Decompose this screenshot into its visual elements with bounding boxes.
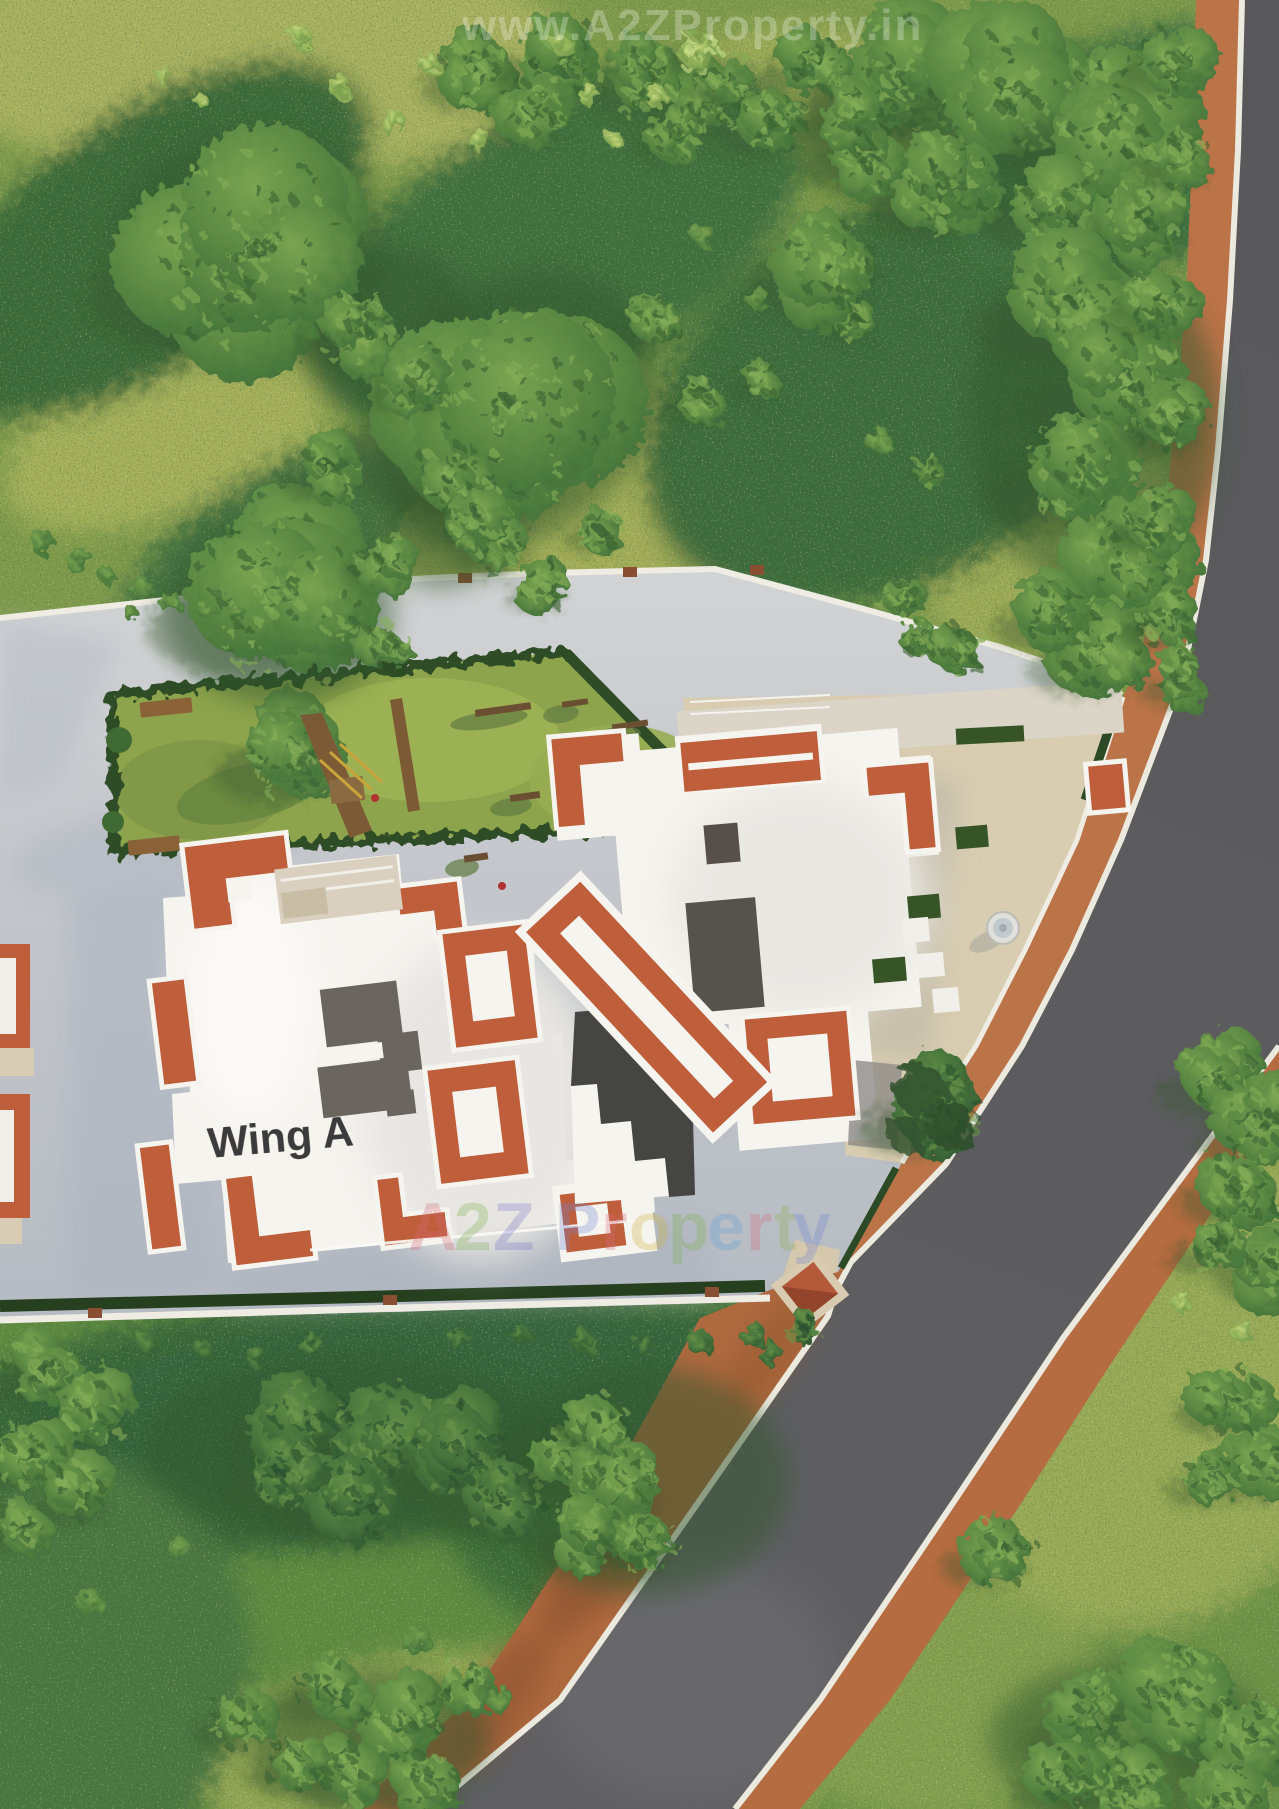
svg-text:r: r: [601, 1189, 627, 1265]
svg-text:p: p: [668, 1189, 710, 1265]
svg-text:2: 2: [454, 1189, 492, 1265]
svg-text:www.A2ZProperty.in: www.A2ZProperty.in: [461, 1, 923, 50]
svg-text:P: P: [555, 1189, 600, 1265]
svg-text:y: y: [793, 1189, 831, 1265]
svg-text:Z: Z: [493, 1189, 535, 1265]
svg-text:A: A: [408, 1189, 457, 1265]
svg-text:r: r: [746, 1189, 772, 1265]
svg-text:e: e: [707, 1189, 745, 1265]
svg-text:o: o: [629, 1189, 671, 1265]
